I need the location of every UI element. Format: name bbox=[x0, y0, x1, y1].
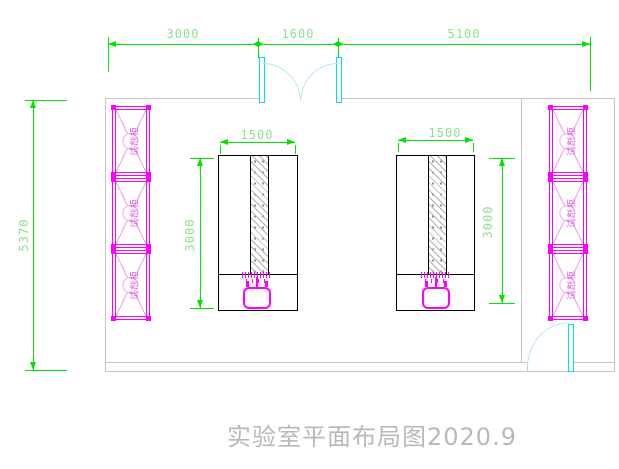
dim-tick bbox=[190, 308, 214, 309]
cabinet-label: 试剂柜 bbox=[128, 270, 141, 300]
dim-label-1600: 1600 bbox=[275, 27, 321, 41]
dim-label-bench-right-width: 1500 bbox=[421, 126, 469, 140]
dim-arrow-icon bbox=[287, 139, 295, 145]
wall-bottom-inner-right bbox=[571, 362, 615, 363]
wall-top-left bbox=[105, 98, 260, 99]
wall-partition-right bbox=[521, 98, 522, 362]
floor-plan-canvas: 3000 1600 5100 5370 1500 3000 1500 3000 bbox=[0, 0, 619, 469]
sink-basin-icon bbox=[422, 287, 450, 309]
wall-bottom-inner-left bbox=[105, 362, 527, 363]
dim-ext bbox=[473, 143, 474, 152]
dim-ext-top-4 bbox=[590, 37, 591, 91]
dim-arrow-mid-icon bbox=[253, 41, 263, 47]
cabinet-corner-blocks bbox=[111, 177, 116, 182]
dim-label-5370: 5370 bbox=[17, 211, 31, 259]
cabinet-label: 试剂柜 bbox=[565, 270, 578, 300]
dim-arrow-icon bbox=[197, 158, 203, 166]
dim-arrow-up-icon bbox=[30, 100, 36, 108]
dim-arrow-right-icon bbox=[582, 41, 590, 47]
dim-arrow-icon bbox=[398, 137, 406, 143]
reagent-cabinet: 试剂柜 bbox=[549, 250, 587, 320]
dim-arrow-icon bbox=[197, 300, 203, 308]
sink-faucet-icon bbox=[256, 277, 258, 287]
dim-arrow-icon bbox=[499, 295, 505, 303]
dim-label-bench-left-width: 1500 bbox=[233, 128, 281, 142]
reagent-cabinet: 试剂柜 bbox=[549, 178, 587, 248]
dim-line-bench-right-depth bbox=[502, 158, 503, 304]
door-swing-arc bbox=[300, 63, 338, 102]
dim-line-left bbox=[33, 100, 34, 370]
dim-arrow-icon bbox=[220, 139, 228, 145]
bench-hatched-channel bbox=[250, 156, 269, 274]
dim-label-bench-left-depth: 3000 bbox=[183, 211, 197, 259]
wall-right bbox=[614, 98, 615, 372]
cabinet-corner-blocks bbox=[548, 249, 553, 254]
reagent-cabinet: 试剂柜 bbox=[112, 250, 150, 320]
dim-line-bench-left-width bbox=[220, 142, 295, 143]
cabinet-label: 试剂柜 bbox=[565, 126, 578, 156]
sink-faucet-icon bbox=[435, 277, 437, 287]
dim-ext bbox=[398, 143, 399, 152]
cabinet-label: 试剂柜 bbox=[565, 198, 578, 228]
door-swing-arc bbox=[527, 322, 570, 367]
wall-left bbox=[105, 98, 106, 372]
dim-ext-left-bottom bbox=[25, 370, 67, 371]
dim-ext-top-2 bbox=[258, 38, 259, 58]
cabinet-corner-blocks bbox=[111, 105, 116, 110]
dim-tick bbox=[489, 303, 515, 304]
reagent-cabinet: 试剂柜 bbox=[112, 178, 150, 248]
dim-arrow-icon bbox=[499, 158, 505, 166]
dim-ext bbox=[295, 145, 296, 154]
dim-arrow-down-icon bbox=[30, 362, 36, 370]
dim-arrow-left-icon bbox=[108, 41, 116, 47]
dim-label-bench-right-depth: 3000 bbox=[481, 198, 495, 246]
cabinet-corner-blocks bbox=[111, 249, 116, 254]
dim-ext bbox=[220, 145, 221, 154]
cabinet-label: 试剂柜 bbox=[128, 126, 141, 156]
dim-arrow-mid-icon bbox=[333, 41, 343, 47]
drawing-title: 实验室平面布局图2020.9 bbox=[227, 417, 517, 452]
dim-label-5100: 5100 bbox=[441, 27, 487, 41]
sink-basin-icon bbox=[243, 287, 271, 309]
door-swing-arc bbox=[263, 63, 301, 102]
wall-top-right bbox=[338, 98, 615, 99]
cabinet-corner-blocks bbox=[548, 177, 553, 182]
cabinet-corner-blocks bbox=[548, 105, 553, 110]
dim-ext-top-3 bbox=[338, 38, 339, 58]
dim-line-bench-left-depth bbox=[200, 158, 201, 308]
dim-label-3000: 3000 bbox=[160, 27, 206, 41]
cabinet-label: 试剂柜 bbox=[128, 198, 141, 228]
dim-line-top bbox=[108, 44, 590, 45]
reagent-cabinet: 试剂柜 bbox=[112, 106, 150, 176]
wall-bottom-outer bbox=[105, 371, 615, 372]
dim-line-bench-right-width bbox=[398, 140, 473, 141]
bench-hatched-channel bbox=[428, 156, 447, 274]
reagent-cabinet: 试剂柜 bbox=[549, 106, 587, 176]
